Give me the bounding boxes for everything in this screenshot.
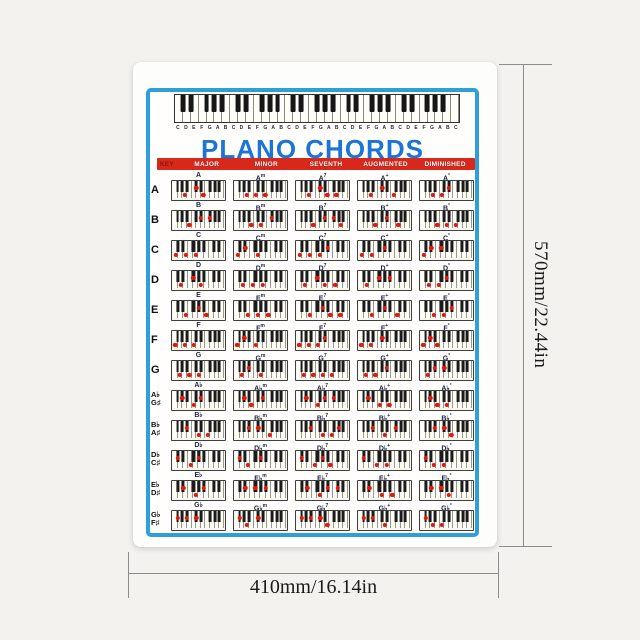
chord-name: E♭m bbox=[233, 472, 288, 480]
black-key bbox=[445, 451, 448, 462]
black-key bbox=[239, 481, 242, 492]
chord-name: C+ bbox=[357, 232, 412, 240]
chord-name: A7 bbox=[295, 172, 350, 180]
key-letter: B bbox=[277, 124, 285, 132]
black-key bbox=[316, 481, 319, 492]
black-key bbox=[443, 391, 446, 402]
chord-suffix: 7 bbox=[324, 233, 327, 239]
black-key bbox=[447, 331, 450, 342]
black-key bbox=[461, 331, 464, 342]
chord-name: A bbox=[171, 172, 226, 180]
black-key bbox=[212, 481, 215, 492]
black-key bbox=[341, 241, 344, 252]
black-key bbox=[309, 391, 312, 402]
key-letter: B bbox=[222, 124, 230, 132]
chord-suffix: + bbox=[387, 413, 390, 419]
chord-suffix: m bbox=[262, 473, 266, 479]
black-key bbox=[383, 271, 386, 282]
black-key bbox=[362, 331, 365, 342]
black-key bbox=[466, 181, 469, 192]
chord-name: D+ bbox=[357, 262, 412, 270]
black-key bbox=[466, 391, 469, 402]
chord-keyboard-diagram bbox=[171, 420, 226, 441]
key-letter: G bbox=[261, 124, 269, 132]
black-key bbox=[261, 511, 264, 522]
key-letter: D bbox=[404, 124, 412, 132]
black-key bbox=[213, 511, 216, 522]
chord-suffix: + bbox=[386, 203, 389, 209]
chord-keyboard-keys bbox=[421, 301, 472, 318]
chord-keyboard-diagram bbox=[295, 420, 350, 441]
black-key bbox=[192, 451, 195, 462]
chord-cell: G♭+ bbox=[357, 501, 412, 531]
black-key bbox=[195, 331, 198, 342]
black-key bbox=[280, 181, 283, 192]
black-key bbox=[319, 421, 322, 432]
black-key bbox=[443, 181, 446, 192]
chord-name: A° bbox=[419, 172, 474, 180]
black-key bbox=[309, 331, 312, 342]
chord-suffix: 7 bbox=[323, 323, 326, 329]
black-key bbox=[450, 481, 453, 492]
chord-name: G7 bbox=[295, 352, 350, 360]
row-key-text: F♯ bbox=[151, 519, 164, 527]
black-key bbox=[388, 451, 391, 462]
black-key bbox=[199, 181, 202, 192]
black-key bbox=[259, 241, 262, 252]
black-key bbox=[195, 211, 198, 222]
black-key bbox=[274, 301, 277, 312]
chord-suffix: 7 bbox=[325, 443, 328, 449]
key-letter: C bbox=[174, 124, 182, 132]
key-letter: C bbox=[396, 124, 404, 132]
key-letter: G bbox=[317, 124, 325, 132]
black-key bbox=[383, 481, 386, 492]
row-key-label: F bbox=[151, 321, 164, 351]
black-key bbox=[254, 271, 257, 282]
black-key bbox=[383, 451, 386, 462]
black-key bbox=[409, 95, 414, 112]
chord-name: B7 bbox=[295, 202, 350, 210]
black-key bbox=[239, 241, 242, 252]
chord-name: G+ bbox=[357, 352, 412, 360]
black-key bbox=[209, 181, 212, 192]
chord-cell: G♭° bbox=[419, 501, 474, 531]
black-key bbox=[236, 95, 241, 112]
black-key bbox=[238, 361, 241, 372]
black-key bbox=[404, 511, 407, 522]
black-key bbox=[425, 241, 428, 252]
chord-name: D♭+ bbox=[357, 442, 412, 450]
chord-cell: Fm bbox=[233, 321, 288, 351]
black-key bbox=[243, 361, 246, 372]
black-key bbox=[254, 451, 257, 462]
black-key bbox=[217, 451, 220, 462]
black-key bbox=[399, 511, 402, 522]
chord-name: Bm bbox=[233, 202, 288, 210]
chord-suffix: + bbox=[386, 173, 389, 179]
black-key bbox=[181, 331, 184, 342]
black-key bbox=[177, 271, 180, 282]
black-key bbox=[342, 331, 345, 342]
black-key bbox=[202, 241, 205, 252]
chord-keyboard-diagram bbox=[233, 390, 288, 411]
black-key bbox=[280, 421, 283, 432]
chord-keyboard-diagram bbox=[295, 480, 350, 501]
chord-cell: A♭7 bbox=[295, 381, 350, 411]
chord-keyboard-diagram bbox=[233, 450, 288, 471]
chord-keyboard-keys bbox=[173, 211, 224, 228]
black-key bbox=[323, 181, 326, 192]
chord-name: A♭° bbox=[419, 382, 474, 390]
chord-keyboard-keys bbox=[173, 391, 224, 408]
black-key bbox=[429, 181, 432, 192]
black-key bbox=[257, 361, 260, 372]
chord-suffix: m bbox=[261, 233, 265, 239]
black-key bbox=[433, 95, 438, 112]
chord-keyboard-diagram bbox=[419, 480, 474, 501]
black-key bbox=[465, 451, 468, 462]
black-key bbox=[461, 391, 464, 402]
black-key bbox=[337, 181, 340, 192]
key-letter: A bbox=[214, 124, 222, 132]
black-key bbox=[300, 391, 303, 402]
key-letter: B bbox=[333, 124, 341, 132]
chord-name: D° bbox=[419, 262, 474, 270]
black-key bbox=[261, 181, 264, 192]
black-key bbox=[447, 511, 450, 522]
black-key bbox=[185, 331, 188, 342]
black-key bbox=[424, 391, 427, 402]
chord-keyboard-diagram bbox=[295, 300, 350, 321]
chord-keyboard-keys bbox=[421, 511, 472, 528]
chord-name: F+ bbox=[357, 322, 412, 330]
chord-name: Am bbox=[233, 172, 288, 180]
chord-name: B° bbox=[419, 202, 474, 210]
black-key bbox=[204, 95, 209, 112]
black-key bbox=[275, 95, 280, 112]
chord-cell: Gm bbox=[233, 351, 288, 381]
black-key bbox=[404, 391, 407, 402]
chord-keyboard-diagram bbox=[419, 330, 474, 351]
black-key bbox=[261, 361, 264, 372]
black-key bbox=[202, 451, 205, 462]
chord-keyboard-keys bbox=[297, 331, 348, 348]
black-key bbox=[305, 421, 308, 432]
chord-keyboard-keys bbox=[235, 271, 286, 288]
black-key bbox=[212, 95, 217, 112]
chord-keyboard-keys bbox=[421, 241, 472, 258]
chord-row: E♭D♯E♭E♭mE♭7E♭+E♭° bbox=[151, 471, 474, 501]
chord-keyboard-diagram bbox=[295, 390, 350, 411]
black-key bbox=[218, 421, 221, 432]
key-letter: F bbox=[420, 124, 428, 132]
black-key bbox=[185, 211, 188, 222]
chord-suffix: ° bbox=[450, 383, 452, 389]
column-header-key: KEY bbox=[157, 161, 177, 168]
chord-name: F° bbox=[419, 322, 474, 330]
black-key bbox=[342, 361, 345, 372]
chord-row: GGGmG7G+G° bbox=[151, 351, 474, 381]
black-key bbox=[254, 301, 257, 312]
key-letter: G bbox=[428, 124, 436, 132]
chord-keyboard-diagram bbox=[233, 180, 288, 201]
black-key bbox=[404, 181, 407, 192]
black-key bbox=[301, 481, 304, 492]
black-key bbox=[443, 211, 446, 222]
black-key bbox=[346, 95, 351, 112]
chord-cell: D7 bbox=[295, 261, 350, 291]
chord-suffix: m bbox=[263, 503, 267, 509]
key-letter: A bbox=[380, 124, 388, 132]
chord-suffix: 7 bbox=[324, 353, 327, 359]
black-key bbox=[368, 271, 371, 282]
chord-keyboard-keys bbox=[173, 451, 224, 468]
key-letter: C bbox=[285, 124, 293, 132]
black-key bbox=[306, 271, 309, 282]
chord-name: E° bbox=[419, 292, 474, 300]
chord-cell: B° bbox=[419, 201, 474, 231]
key-letter: F bbox=[309, 124, 317, 132]
black-key bbox=[213, 211, 216, 222]
black-key bbox=[367, 421, 370, 432]
black-key bbox=[367, 211, 370, 222]
chord-keyboard-diagram bbox=[357, 180, 412, 201]
chord-keyboard-diagram bbox=[419, 450, 474, 471]
black-key bbox=[280, 331, 283, 342]
black-key bbox=[378, 481, 381, 492]
chord-name: G♭m bbox=[233, 502, 288, 510]
black-key bbox=[362, 181, 365, 192]
black-key bbox=[425, 301, 428, 312]
black-key bbox=[243, 181, 246, 192]
chord-name: Gm bbox=[233, 352, 288, 360]
black-key bbox=[440, 451, 443, 462]
black-key bbox=[460, 301, 463, 312]
chord-suffix: m bbox=[262, 413, 266, 419]
chord-keyboard-diagram bbox=[295, 240, 350, 261]
black-key bbox=[341, 271, 344, 282]
black-key bbox=[403, 241, 406, 252]
chord-keyboard-diagram bbox=[171, 390, 226, 411]
black-key bbox=[280, 511, 283, 522]
black-key bbox=[319, 361, 322, 372]
black-key bbox=[385, 421, 388, 432]
black-key bbox=[202, 301, 205, 312]
black-key bbox=[274, 481, 277, 492]
chord-name: C7 bbox=[295, 232, 350, 240]
chord-suffix: ° bbox=[448, 353, 450, 359]
chord-name: E7 bbox=[295, 292, 350, 300]
black-key bbox=[261, 211, 264, 222]
black-key bbox=[264, 451, 267, 462]
black-key bbox=[404, 421, 407, 432]
chord-cell: F° bbox=[419, 321, 474, 351]
black-key bbox=[363, 271, 366, 282]
black-key bbox=[212, 241, 215, 252]
black-key bbox=[213, 421, 216, 432]
black-key bbox=[370, 95, 375, 112]
black-key bbox=[424, 181, 427, 192]
chord-cell: F+ bbox=[357, 321, 412, 351]
chord-name: A♭ bbox=[171, 382, 226, 390]
black-key bbox=[403, 481, 406, 492]
chord-suffix: ° bbox=[449, 473, 451, 479]
chord-cell: E bbox=[171, 291, 226, 321]
black-key bbox=[399, 361, 402, 372]
chord-keyboard-diagram bbox=[171, 510, 226, 531]
chord-suffix: ° bbox=[448, 203, 450, 209]
chord-keyboard-diagram bbox=[419, 300, 474, 321]
chord-cell: B♭+ bbox=[357, 411, 412, 441]
black-key bbox=[461, 421, 464, 432]
black-key bbox=[291, 95, 296, 112]
black-key bbox=[363, 481, 366, 492]
chord-keyboard-diagram bbox=[357, 480, 412, 501]
chord-keyboard-keys bbox=[421, 361, 472, 378]
black-key bbox=[213, 181, 216, 192]
chord-keyboard-keys bbox=[359, 421, 410, 438]
chord-keyboard-diagram bbox=[357, 240, 412, 261]
chord-keyboard-keys bbox=[235, 391, 286, 408]
black-key bbox=[381, 391, 384, 402]
chord-cell: C7 bbox=[295, 231, 350, 261]
black-key bbox=[239, 301, 242, 312]
black-key bbox=[274, 241, 277, 252]
chord-suffix: 7 bbox=[324, 263, 327, 269]
chord-name: Fm bbox=[233, 322, 288, 330]
black-key bbox=[395, 181, 398, 192]
row-key-label: A♭G♯ bbox=[151, 381, 164, 411]
black-key bbox=[305, 181, 308, 192]
black-key bbox=[385, 391, 388, 402]
height-dimension-line bbox=[523, 64, 524, 546]
chord-cell: A7 bbox=[295, 171, 350, 201]
chord-keyboard-keys bbox=[421, 331, 472, 348]
chord-suffix: + bbox=[387, 503, 390, 509]
chord-name: A♭+ bbox=[357, 382, 412, 390]
chord-keyboard-keys bbox=[359, 481, 410, 498]
black-key bbox=[300, 361, 303, 372]
black-key bbox=[238, 211, 241, 222]
keyboard-strip-keys bbox=[175, 95, 459, 122]
chord-suffix: ° bbox=[450, 503, 452, 509]
chord-cell: D♭m bbox=[233, 441, 288, 471]
black-key bbox=[461, 211, 464, 222]
black-key bbox=[440, 271, 443, 282]
black-key bbox=[326, 271, 329, 282]
chord-cell: B♭7 bbox=[295, 411, 350, 441]
chord-keyboard-keys bbox=[235, 451, 286, 468]
black-key bbox=[257, 181, 260, 192]
black-key bbox=[199, 331, 202, 342]
black-key bbox=[395, 211, 398, 222]
black-key bbox=[217, 301, 220, 312]
chord-suffix: m bbox=[262, 383, 266, 389]
chord-keyboard-diagram bbox=[171, 450, 226, 471]
key-letter: A bbox=[269, 124, 277, 132]
chord-keyboard-keys bbox=[421, 181, 472, 198]
black-key bbox=[247, 331, 250, 342]
chord-keyboard-diagram bbox=[357, 360, 412, 381]
chord-name: D♭ bbox=[171, 442, 226, 450]
chord-cell: E♭° bbox=[419, 471, 474, 501]
chord-keyboard-keys bbox=[421, 391, 472, 408]
poster-frame: CDEFGABCDEFGABCDEFGABCDEFGABCDEFGABC PLA… bbox=[146, 88, 479, 537]
black-key bbox=[465, 271, 468, 282]
black-key bbox=[323, 511, 326, 522]
chord-keyboard-keys bbox=[297, 181, 348, 198]
black-key bbox=[218, 331, 221, 342]
black-key bbox=[367, 361, 370, 372]
black-key bbox=[199, 421, 202, 432]
column-header-major: MAJOR bbox=[177, 161, 237, 168]
keyboard-strip-letters: CDEFGABCDEFGABCDEFGABCDEFGABCDEFGABC bbox=[174, 124, 460, 132]
chord-keyboard-keys bbox=[235, 481, 286, 498]
black-key bbox=[401, 95, 406, 112]
black-key bbox=[404, 331, 407, 342]
chord-keyboard-diagram bbox=[357, 450, 412, 471]
row-key-label: A bbox=[151, 171, 164, 201]
black-key bbox=[385, 181, 388, 192]
column-header-augmented: AUGMENTED bbox=[356, 161, 416, 168]
chord-cell: C+ bbox=[357, 231, 412, 261]
black-key bbox=[305, 211, 308, 222]
column-header-minor: MINOR bbox=[237, 161, 297, 168]
chord-suffix: ° bbox=[448, 233, 450, 239]
chord-name: B♭+ bbox=[357, 412, 412, 420]
black-key bbox=[254, 241, 257, 252]
chord-keyboard-keys bbox=[297, 271, 348, 288]
black-key bbox=[195, 361, 198, 372]
product-photo-canvas: CDEFGABCDEFGABCDEFGABCDEFGABCDEFGABC PLA… bbox=[0, 0, 640, 640]
chord-keyboard-diagram bbox=[357, 390, 412, 411]
black-key bbox=[177, 301, 180, 312]
column-header-seventh: SEVENTH bbox=[296, 161, 356, 168]
chord-suffix: ° bbox=[448, 323, 450, 329]
black-key bbox=[362, 361, 365, 372]
row-key-text: A bbox=[151, 185, 164, 196]
black-key bbox=[429, 421, 432, 432]
black-key bbox=[388, 241, 391, 252]
black-key bbox=[368, 451, 371, 462]
chord-suffix: + bbox=[387, 473, 390, 479]
black-key bbox=[425, 271, 428, 282]
chord-keyboard-diagram bbox=[233, 360, 288, 381]
black-key bbox=[279, 241, 282, 252]
black-key bbox=[209, 331, 212, 342]
black-key bbox=[337, 211, 340, 222]
black-key bbox=[301, 241, 304, 252]
black-key bbox=[386, 95, 391, 112]
black-key bbox=[218, 511, 221, 522]
chord-cell: A° bbox=[419, 171, 474, 201]
chord-name: D♭m bbox=[233, 442, 288, 450]
black-key bbox=[385, 331, 388, 342]
black-key bbox=[424, 421, 427, 432]
black-key bbox=[267, 95, 272, 112]
black-key bbox=[209, 361, 212, 372]
chord-keyboard-diagram bbox=[295, 330, 350, 351]
black-key bbox=[447, 211, 450, 222]
chord-suffix: 7 bbox=[325, 413, 328, 419]
black-key bbox=[213, 391, 216, 402]
black-key bbox=[309, 211, 312, 222]
row-key-text: E bbox=[151, 305, 164, 316]
row-key-text: G♯ bbox=[151, 399, 164, 407]
black-key bbox=[457, 421, 460, 432]
chord-cell: Am bbox=[233, 171, 288, 201]
